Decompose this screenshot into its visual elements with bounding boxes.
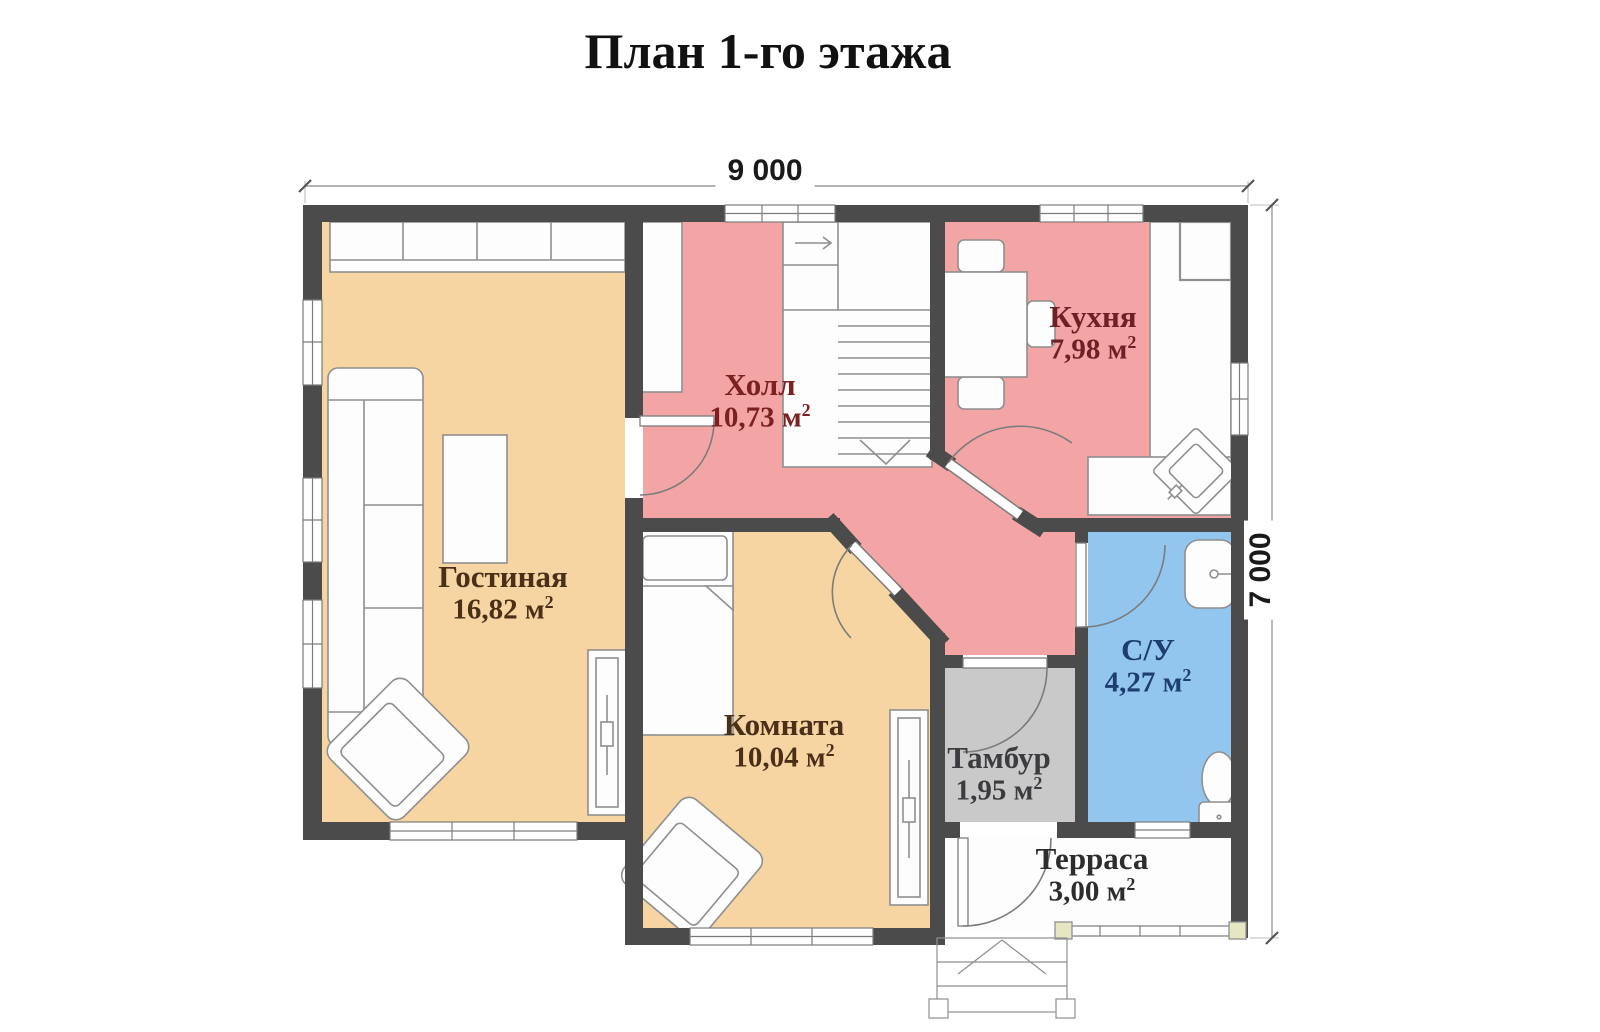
room-label-living: Гостиная 16,82 м2 bbox=[438, 560, 567, 626]
dimension-height-label: 7 000 bbox=[1244, 520, 1278, 619]
bed bbox=[637, 530, 733, 735]
window-living-left-3 bbox=[303, 600, 322, 688]
window-room-bottom bbox=[690, 928, 873, 945]
porch-steps bbox=[929, 938, 1075, 1018]
dimension-width-label: 9 000 bbox=[715, 154, 814, 188]
room-label-tambour: Тамбур 1,95 м2 bbox=[947, 741, 1051, 807]
door-living-hall bbox=[640, 416, 714, 426]
window-hall-top bbox=[725, 205, 835, 222]
window-wc-bottom bbox=[1135, 822, 1190, 838]
window-kitchen-right bbox=[1231, 363, 1248, 435]
room-label-terrace: Терраса 3,00 м2 bbox=[1036, 842, 1149, 908]
window-living-left-2 bbox=[303, 478, 322, 562]
closet bbox=[640, 222, 682, 392]
radiator-living bbox=[588, 650, 626, 815]
fridge bbox=[1180, 222, 1231, 280]
door-tambour bbox=[963, 658, 1047, 668]
bathroom-sink bbox=[1185, 540, 1235, 608]
door-terrace bbox=[958, 838, 968, 926]
room-label-room: Комната 10,04 м2 bbox=[724, 708, 845, 774]
coffee-table bbox=[443, 435, 507, 563]
door-wc bbox=[1076, 543, 1086, 627]
wall-cabinet bbox=[330, 222, 625, 272]
window-kitchen-top bbox=[1040, 205, 1143, 222]
window-living-bottom bbox=[390, 822, 577, 840]
room-label-kitchen: Кухня 7,98 м2 bbox=[1049, 300, 1136, 366]
window-living-left-1 bbox=[303, 300, 322, 385]
room-label-hall: Холл 10,73 м2 bbox=[709, 368, 810, 434]
room-label-wc: С/У 4,27 м2 bbox=[1105, 633, 1192, 699]
floor-plan-page: План 1-го этажа bbox=[0, 0, 1600, 1032]
radiator-room bbox=[890, 710, 928, 905]
